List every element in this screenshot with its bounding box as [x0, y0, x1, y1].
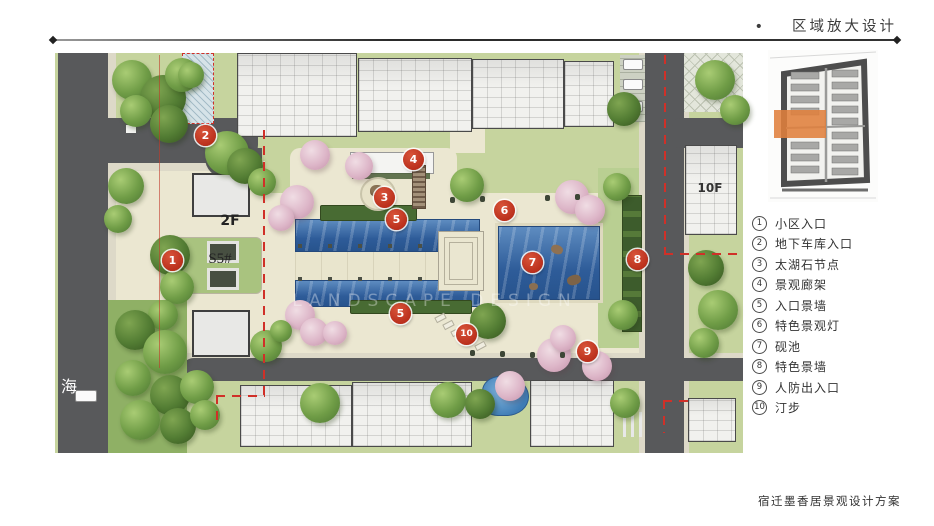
page-title-text: 区域放大设计 — [792, 19, 897, 35]
landscape-lamp — [450, 197, 455, 203]
tree — [300, 383, 340, 423]
tower-label: 10F — [687, 181, 733, 195]
landscape-lamp — [560, 352, 565, 358]
marker-5b: 5 — [390, 303, 411, 324]
tree — [104, 205, 132, 233]
boundary-dashed — [664, 55, 666, 253]
tree — [450, 168, 484, 202]
legend-label: 特色景墙 — [775, 358, 827, 375]
viewing-platform — [438, 231, 484, 291]
louver-screen — [412, 165, 426, 209]
legend-item: 3太湖石节点 — [752, 254, 922, 274]
legend-num: 9 — [752, 380, 767, 395]
tree — [608, 300, 638, 330]
marker-1: 1 — [162, 250, 183, 271]
slide: •区域放大设计 — [0, 0, 934, 526]
legend-num: 3 — [752, 257, 767, 272]
small-building — [688, 398, 736, 442]
boundary-dashed — [263, 130, 265, 395]
tree — [160, 270, 194, 304]
tree — [430, 382, 466, 418]
marker-4: 4 — [403, 149, 424, 170]
street-label: 海 — [61, 373, 77, 397]
boundary-dashed — [216, 395, 218, 427]
legend-label: 砚池 — [775, 338, 801, 355]
legend-num: 8 — [752, 359, 767, 374]
tree — [695, 60, 735, 100]
pool-rock — [529, 283, 538, 290]
tree — [178, 62, 204, 88]
legend-label: 太湖石节点 — [775, 256, 840, 273]
key-map — [768, 50, 878, 202]
tree — [120, 95, 152, 127]
project-title: 宿迁墨香居景观设计方案 — [758, 493, 901, 509]
gatehouse-label: 2F — [210, 213, 250, 229]
tree — [248, 168, 276, 196]
boundary-dashed — [664, 253, 743, 255]
marker-3: 3 — [374, 187, 395, 208]
tree — [465, 389, 495, 419]
legend-item: 6特色景观灯 — [752, 316, 922, 336]
landscape-lamp — [470, 350, 475, 356]
cherry-tree — [345, 152, 373, 180]
tree — [120, 400, 160, 440]
boundary-dashed — [663, 400, 691, 402]
marker-6: 6 — [494, 200, 515, 221]
tree — [603, 173, 631, 201]
legend-label: 汀步 — [775, 399, 801, 416]
cherry-tree — [575, 195, 605, 225]
legend-num: 1 — [752, 216, 767, 231]
tree — [150, 105, 188, 143]
landscape-lamp — [500, 351, 505, 357]
pool-rock — [566, 273, 582, 286]
legend-label: 特色景观灯 — [775, 317, 840, 334]
cherry-tree — [268, 205, 294, 231]
site-plan: 2F S5# 10F 海 LANDSCAPE DESIGN 1 2 3 4 5 … — [55, 53, 743, 453]
legend-label: 入口景墙 — [775, 297, 827, 314]
watermark: LANDSCAPE DESIGN — [285, 291, 585, 311]
inkstone-pool — [498, 226, 600, 300]
legend-label: 地下车库入口 — [775, 235, 853, 252]
legend-label: 小区入口 — [775, 215, 827, 232]
legend-item: 9人防出入口 — [752, 377, 922, 397]
rule-diamond-right — [893, 36, 901, 44]
legend-item: 10汀步 — [752, 398, 922, 418]
legend-item: 7砚池 — [752, 336, 922, 356]
title-rule — [53, 39, 897, 41]
legend-num: 7 — [752, 339, 767, 354]
tree — [108, 168, 144, 204]
tree — [688, 250, 724, 286]
marker-9: 9 — [577, 341, 598, 362]
residential-building — [564, 61, 614, 127]
legend-num: 6 — [752, 318, 767, 333]
marker-5a: 5 — [386, 209, 407, 230]
planter — [207, 268, 239, 290]
cherry-tree — [300, 140, 330, 170]
tree — [180, 370, 214, 404]
boundary-dashed — [216, 395, 265, 397]
tree — [610, 388, 640, 418]
legend-num: 4 — [752, 277, 767, 292]
legend-item: 5入口景墙 — [752, 295, 922, 315]
boundary-dashed — [663, 400, 665, 433]
block-label: S5# — [190, 251, 250, 268]
rule-diamond-left — [49, 36, 57, 44]
legend-num: 10 — [752, 400, 767, 415]
page-title: •区域放大设计 — [754, 15, 897, 36]
legend-label: 人防出入口 — [775, 379, 840, 396]
marker-7: 7 — [522, 252, 543, 273]
residential-building — [358, 58, 472, 132]
tree — [607, 92, 641, 126]
key-map-graphic — [768, 50, 878, 202]
landscape-lamp — [575, 194, 580, 200]
car — [75, 390, 97, 402]
tree — [689, 328, 719, 358]
tree — [270, 320, 292, 342]
marker-8: 8 — [627, 249, 648, 270]
legend: 1小区入口 2地下车库入口 3太湖石节点 4景观廊架 5入口景墙 6特色景观灯 … — [752, 213, 922, 418]
legend-item: 4景观廊架 — [752, 275, 922, 295]
pool-rock — [550, 243, 564, 256]
car — [623, 79, 643, 90]
landscape-lamp — [530, 352, 535, 358]
residential-building — [530, 380, 614, 447]
legend-num: 2 — [752, 236, 767, 251]
key-map-highlight — [774, 110, 826, 138]
legend-item: 1小区入口 — [752, 213, 922, 233]
landscape-lamp — [545, 195, 550, 201]
legend-label: 景观廊架 — [775, 276, 827, 293]
cherry-tree — [323, 321, 347, 345]
cherry-tree — [495, 371, 525, 401]
legend-item: 2地下车库入口 — [752, 234, 922, 254]
marker-10: 10 — [456, 324, 477, 345]
landscape-lamp — [480, 196, 485, 202]
tree — [698, 290, 738, 330]
car — [623, 59, 643, 70]
tree — [143, 330, 187, 374]
legend-item: 8特色景墙 — [752, 357, 922, 377]
cherry-tree — [550, 325, 576, 351]
tree — [720, 95, 750, 125]
residential-building — [472, 59, 564, 129]
boundary-line-thin — [159, 55, 160, 368]
gatehouse-south — [192, 310, 250, 357]
legend-num: 5 — [752, 298, 767, 313]
tree — [115, 360, 151, 396]
residential-building — [237, 53, 357, 137]
title-bullet-icon: • — [754, 19, 766, 35]
marker-2: 2 — [195, 125, 216, 146]
platform-frame — [449, 242, 473, 280]
